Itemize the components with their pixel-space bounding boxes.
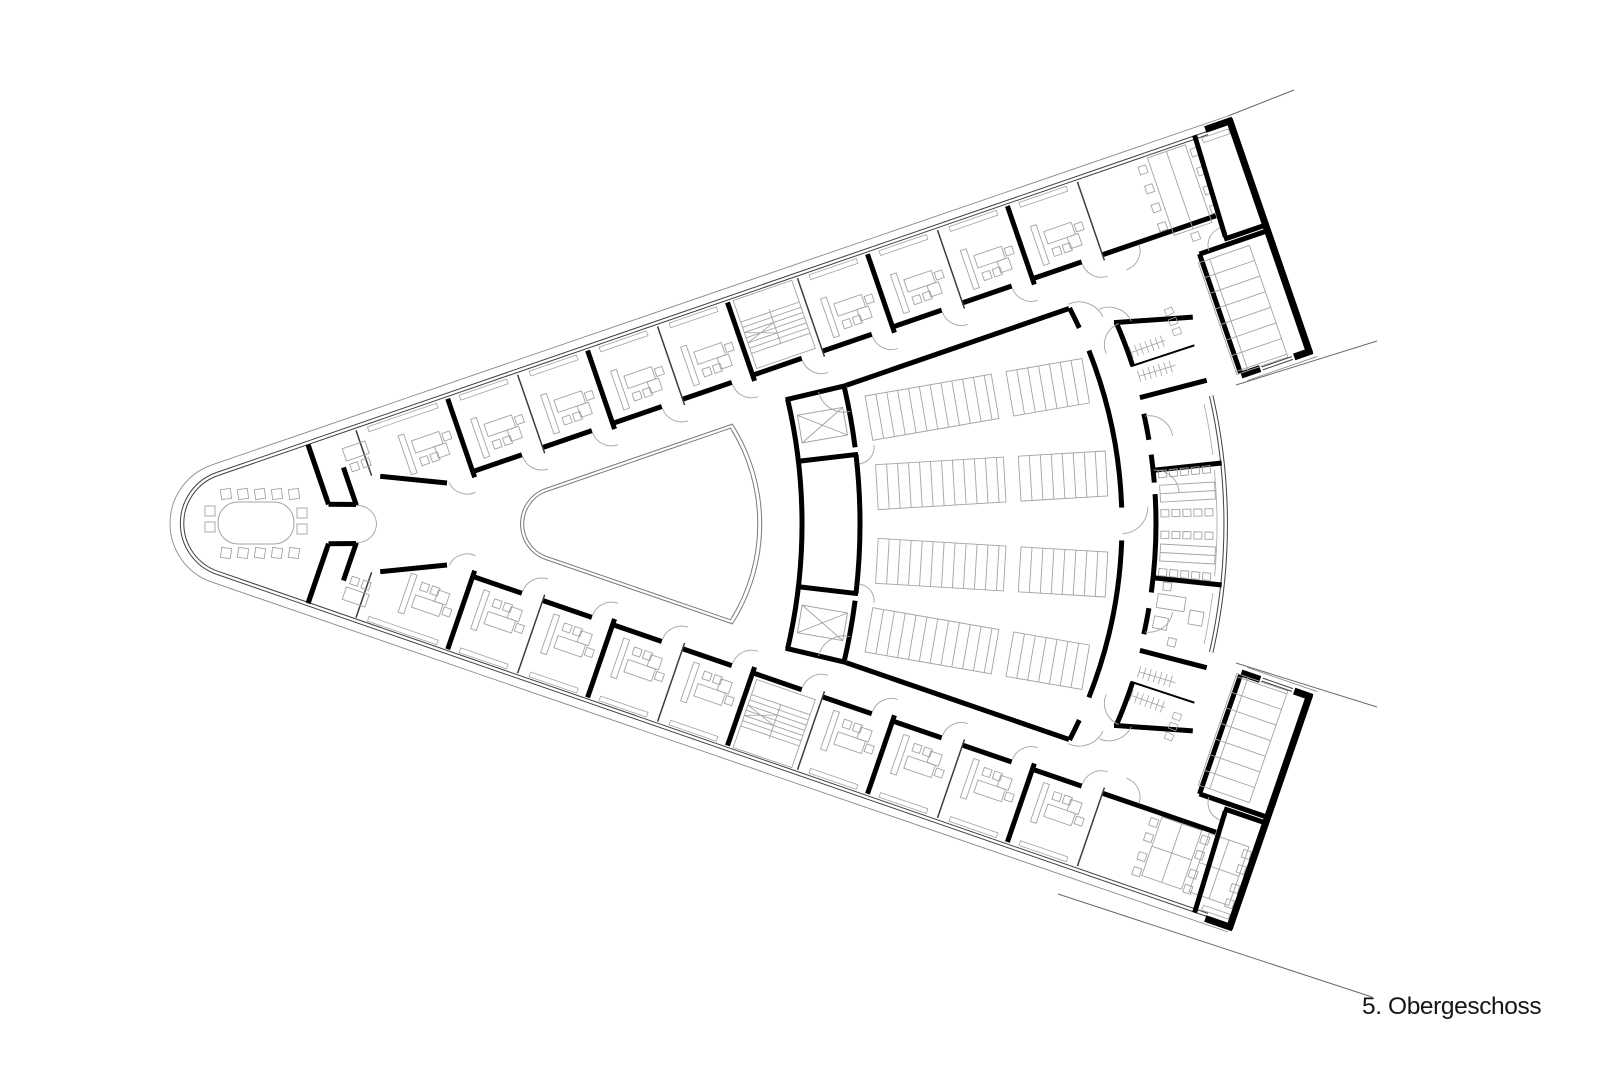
svg-text:5. Obergeschoss: 5. Obergeschoss [1362, 993, 1541, 1020]
